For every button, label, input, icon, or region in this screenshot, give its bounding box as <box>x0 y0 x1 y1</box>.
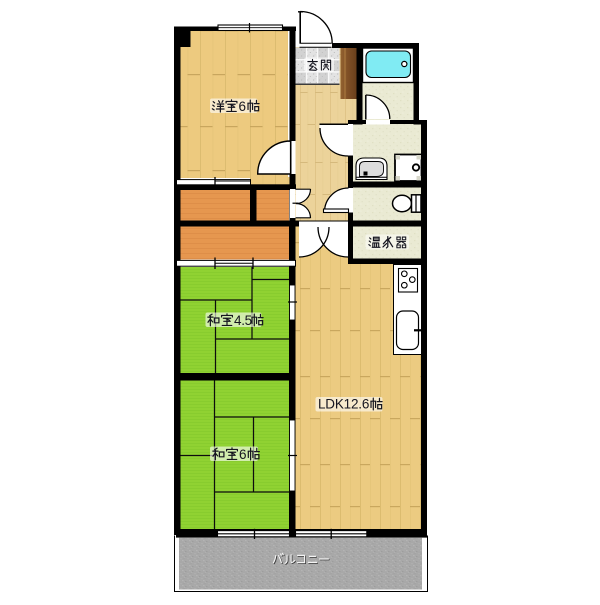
svg-text:LDK12.6: LDK12.6 <box>318 396 369 411</box>
svg-text:4.5: 4.5 <box>234 313 252 328</box>
svg-text:6: 6 <box>239 99 247 114</box>
svg-text:6: 6 <box>239 447 247 462</box>
